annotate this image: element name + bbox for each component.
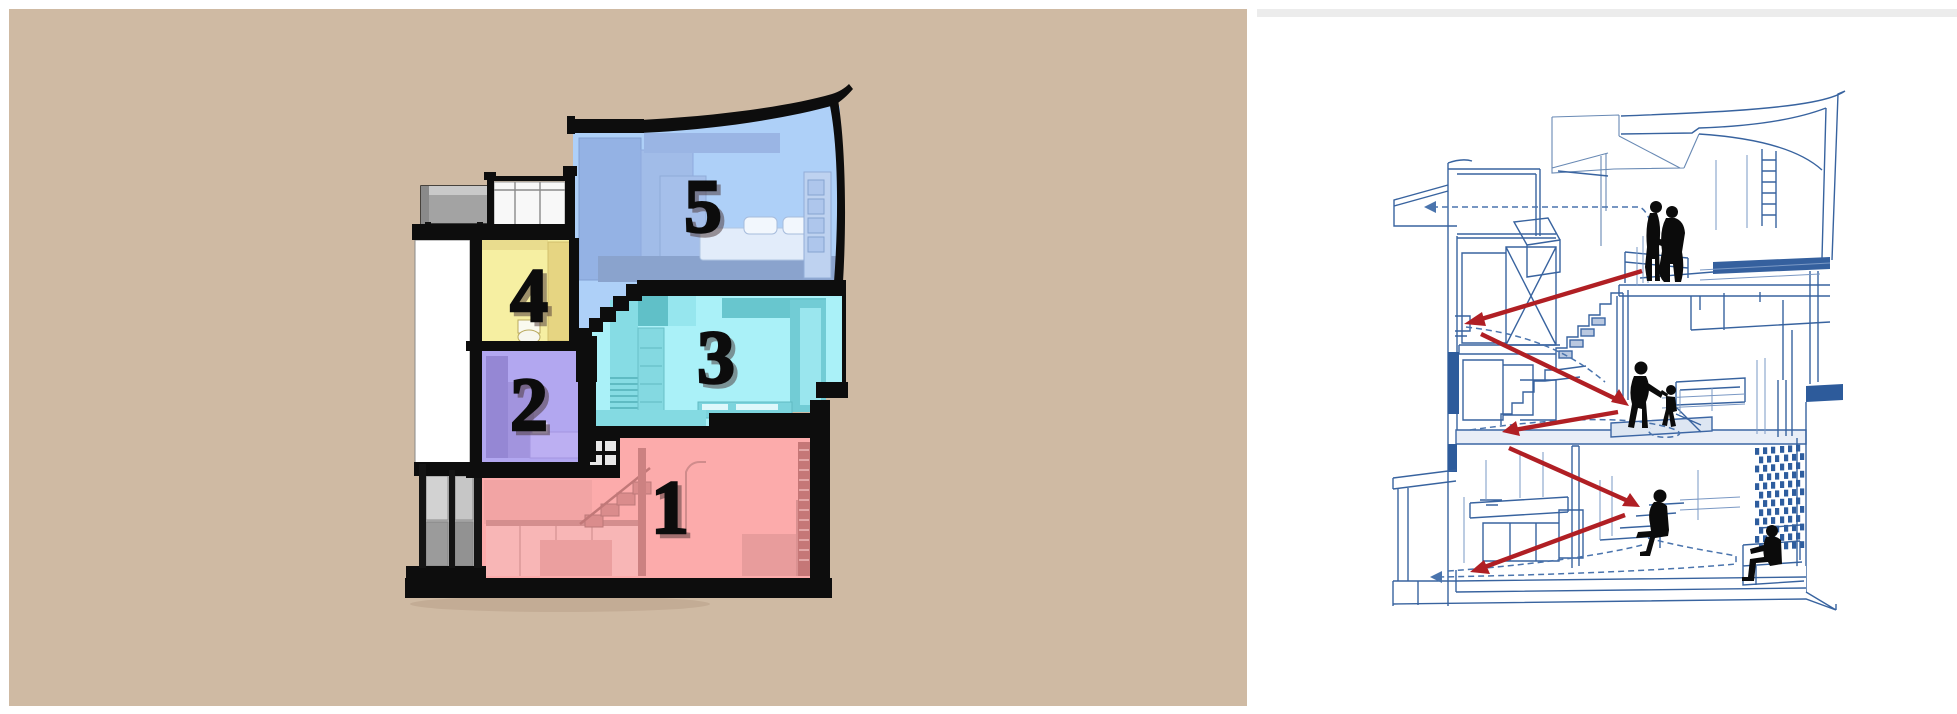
svg-text:4: 4 xyxy=(510,254,548,338)
svg-text:2: 2 xyxy=(510,363,548,447)
svg-text:5: 5 xyxy=(684,165,722,249)
svg-text:1: 1 xyxy=(651,466,689,550)
svg-text:3: 3 xyxy=(697,316,735,400)
